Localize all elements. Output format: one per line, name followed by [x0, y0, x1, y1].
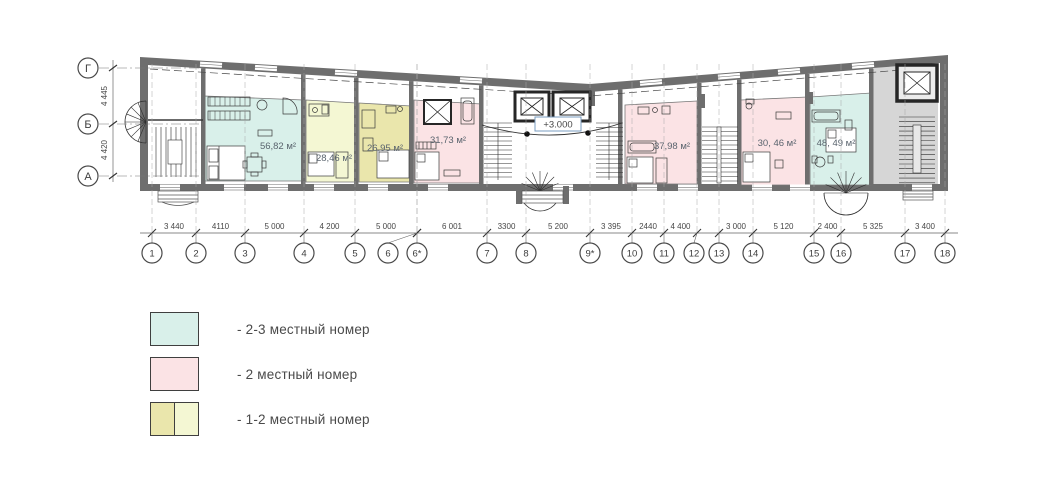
legend-item: - 2 местный номер	[150, 357, 370, 391]
legend-swatch-color	[151, 358, 198, 390]
elevation-label: +3.000	[543, 120, 572, 131]
legend-item: - 2-3 местный номер	[150, 312, 370, 346]
grid-bubble-label: 17	[900, 248, 911, 259]
dim-label: 4 400	[670, 222, 691, 231]
divider-wall	[618, 90, 623, 185]
floor-plan-page: +3.000	[0, 0, 1049, 483]
dim-label: 2 400	[817, 222, 838, 231]
legend-swatch-color	[151, 313, 198, 345]
dim-label: 5 000	[264, 222, 285, 231]
dim-label: 5 325	[863, 222, 884, 231]
grid-bubble-label: 16	[836, 248, 847, 259]
legend-label: - 1-2 местный номер	[237, 412, 370, 427]
wall-stub-mid	[697, 94, 705, 108]
row-axis-label: Г	[85, 63, 91, 75]
grid-bubble-label: 13	[714, 248, 725, 259]
row-axis-label: Б	[84, 119, 91, 131]
legend-label: - 2 местный номер	[237, 367, 357, 382]
divider-wall	[354, 78, 359, 185]
dim-label: 3 440	[164, 222, 185, 231]
dim-label: 5 120	[773, 222, 794, 231]
elevation-mark: +3.000	[535, 117, 581, 131]
window	[368, 185, 388, 193]
grid-bubble-label: 8	[523, 248, 528, 259]
divider-wall	[301, 74, 306, 185]
room-area-label: 48, 49 м²	[817, 138, 856, 149]
dim-label: 4110	[212, 222, 230, 231]
dimension-chain: 3 44041105 0004 2005 0006 00133005 2003 …	[140, 222, 958, 237]
grid-bubble-label: 5	[352, 248, 357, 259]
grid-bubble-label: 10	[627, 248, 638, 259]
axis-bubbles: 1234566*789*101112131415161718	[142, 233, 955, 263]
wall-stub-right	[805, 92, 813, 104]
grid-bubble-label: 2	[193, 248, 198, 259]
bubble-leader	[388, 233, 417, 243]
legend: - 2-3 местный номер- 2 местный номер- 1-…	[150, 312, 370, 447]
stair-rail	[913, 125, 921, 173]
grid-bubble-label: 1	[149, 248, 154, 259]
divider-wall	[409, 81, 414, 185]
grid-bubble-label: 6	[385, 248, 390, 259]
divider-wall	[737, 80, 742, 185]
window	[428, 185, 448, 193]
divider-wall	[869, 69, 874, 185]
window	[637, 185, 657, 193]
divider-wall	[201, 68, 206, 185]
legend-swatch-color	[151, 403, 174, 435]
room-area-label: 31,73 м²	[430, 135, 466, 146]
dim-label: 3300	[498, 222, 516, 231]
grid-bubble-label: 3	[242, 248, 247, 259]
window	[678, 185, 698, 193]
dim-label: 3 400	[915, 222, 936, 231]
legend-label: - 2-3 местный номер	[237, 322, 370, 337]
divider-wall	[479, 85, 484, 185]
legend-swatch-color	[174, 403, 198, 435]
dim-label: 3 000	[726, 222, 747, 231]
dim-label: 4 200	[319, 222, 340, 231]
legend-item: - 1-2 местный номер	[150, 402, 370, 436]
legend-swatch	[150, 312, 199, 346]
room-area-label: 26,95 м²	[367, 143, 403, 154]
window	[790, 185, 810, 193]
row-axis-label: А	[84, 171, 92, 183]
grid-bubble-label: 12	[689, 248, 700, 259]
grid-bubble-label: 9*	[586, 248, 595, 259]
dim-label: 5 000	[376, 222, 397, 231]
room-area-label: 56,82 м²	[260, 141, 296, 152]
stair-rail	[168, 140, 182, 164]
grid-bubble-label: 11	[659, 248, 669, 259]
legend-swatch	[150, 357, 199, 391]
grid-bubble-label: 4	[301, 248, 306, 259]
legend-swatch	[150, 402, 199, 436]
dim-label: 3 395	[601, 222, 622, 231]
grid-bubble-label: 15	[809, 248, 820, 259]
window	[224, 185, 244, 193]
dim-label: 2440	[639, 222, 657, 231]
room-area-label: 37,98 м²	[654, 141, 690, 152]
dim-label: 6 001	[442, 222, 463, 231]
grid-bubble-label: 7	[484, 248, 489, 259]
row-dim-label: 4 445	[100, 85, 109, 106]
window	[268, 185, 288, 193]
dim-label: 5 200	[548, 222, 569, 231]
divider-wall	[805, 74, 810, 185]
room-area-label: 28,46 м²	[316, 153, 352, 164]
row-dim-label: 4 420	[100, 139, 109, 160]
window	[314, 185, 334, 193]
fan-stair	[824, 193, 868, 215]
window	[752, 185, 772, 193]
grid-bubble-label: 14	[748, 248, 759, 259]
room-area-label: 30, 46 м²	[758, 138, 797, 149]
grid-bubble-label: 6*	[413, 248, 422, 259]
grid-bubble-label: 18	[940, 248, 951, 259]
